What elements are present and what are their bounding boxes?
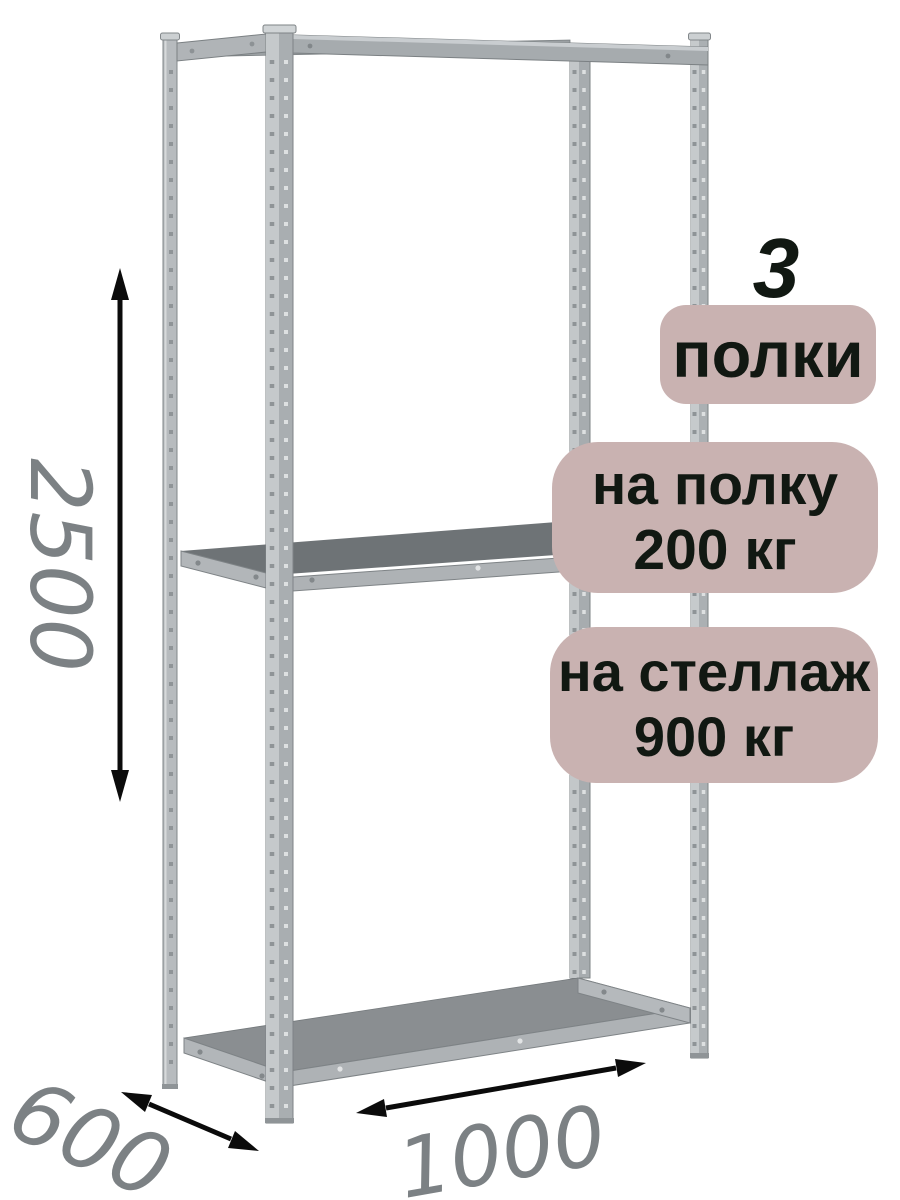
rack-post-back-left	[161, 33, 180, 1089]
rack-post-front-left	[263, 25, 296, 1123]
rack-diagram: 2500 600 1000	[0, 0, 900, 1200]
shelf-count-number: 3	[741, 220, 811, 310]
badge-load-per-rack: на стеллаж 900 кг	[550, 627, 878, 783]
width-dimension-label: 1000	[391, 1088, 613, 1200]
badge-load-per-rack-line1: на стеллаж	[558, 640, 870, 705]
badge-shelf-count: полки	[660, 305, 876, 404]
badge-load-per-rack-line2: 900 кг	[634, 705, 794, 770]
product-image-canvas: 2500 600 1000 3 полки на полку 200 кг на…	[0, 0, 900, 1200]
dimension-width: 1000	[356, 1059, 646, 1200]
badge-load-per-shelf-line2: 200 кг	[633, 518, 796, 583]
badge-shelf-count-label: полки	[672, 317, 863, 392]
badge-load-per-shelf-line1: на полку	[592, 453, 838, 518]
rack-top-shelf	[177, 34, 708, 65]
dimension-depth: 600	[0, 1060, 259, 1200]
height-dimension-label: 2500	[11, 458, 109, 672]
dimension-height: 2500	[11, 268, 129, 802]
depth-dimension-label: 600	[0, 1060, 186, 1200]
badge-load-per-shelf: на полку 200 кг	[552, 442, 878, 593]
